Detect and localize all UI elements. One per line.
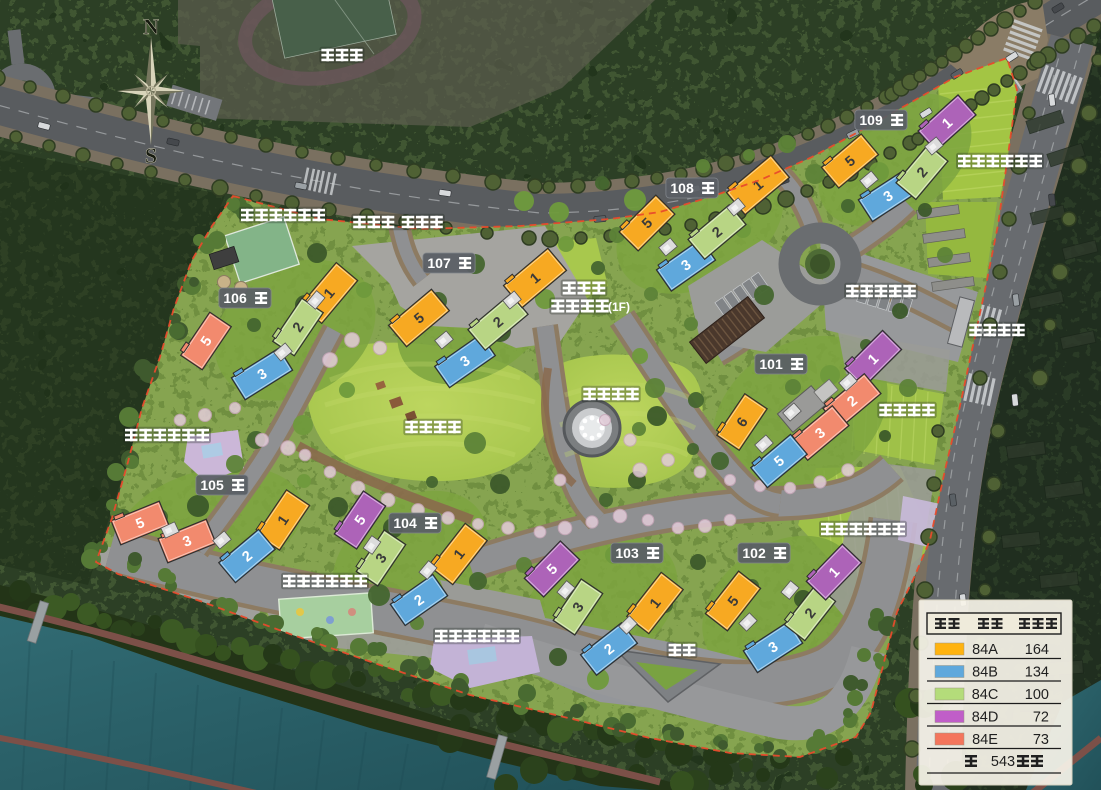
svg-text:72: 72	[1033, 710, 1049, 726]
svg-text:84D: 84D	[972, 710, 999, 726]
svg-text:102: 102	[742, 545, 766, 561]
svg-text:(1F): (1F)	[608, 300, 630, 314]
svg-text:S: S	[145, 143, 157, 168]
svg-text:543: 543	[991, 754, 1015, 770]
svg-text:73: 73	[1033, 732, 1049, 748]
svg-text:101: 101	[759, 356, 783, 372]
svg-text:108: 108	[670, 180, 694, 196]
svg-text:100: 100	[1025, 687, 1049, 703]
svg-text:84B: 84B	[972, 665, 998, 681]
svg-text:N: N	[143, 14, 159, 39]
svg-text:164: 164	[1025, 642, 1049, 658]
svg-text:84A: 84A	[972, 642, 998, 658]
svg-text:84C: 84C	[972, 687, 999, 703]
svg-text:105: 105	[200, 477, 224, 493]
svg-text:134: 134	[1025, 665, 1049, 681]
svg-text:106: 106	[223, 290, 247, 306]
svg-text:104: 104	[393, 515, 417, 531]
svg-text:84E: 84E	[972, 732, 998, 748]
svg-text:109: 109	[859, 112, 883, 128]
svg-text:103: 103	[615, 545, 639, 561]
svg-text:107: 107	[427, 255, 451, 271]
